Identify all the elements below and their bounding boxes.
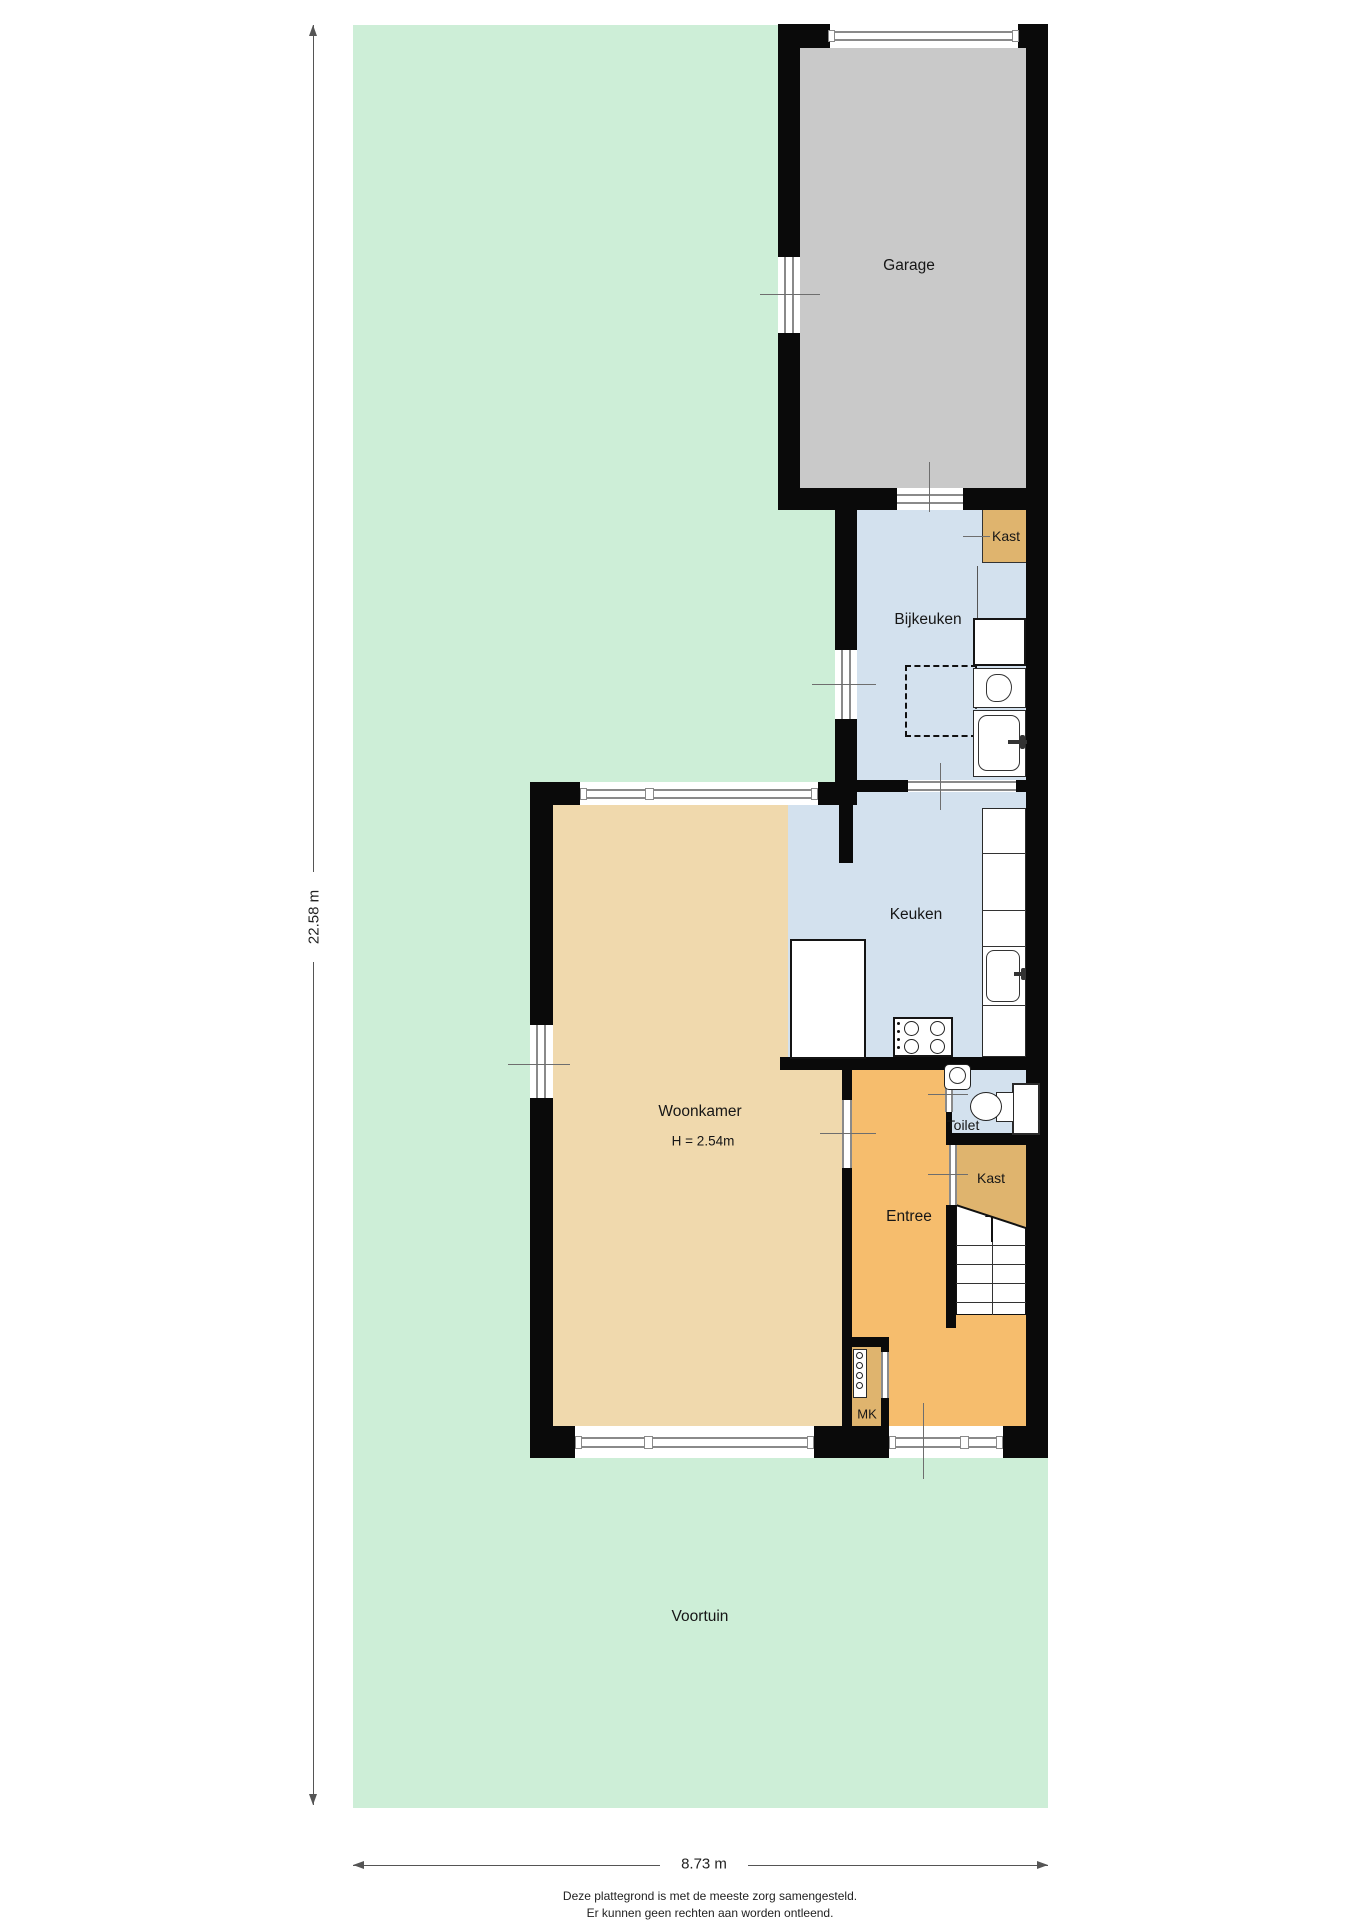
- floorplan-canvas: Garage Bijkeuken Kast Keuken Woonkamer H…: [0, 0, 1358, 1920]
- stove-burner-icon: [930, 1039, 945, 1054]
- fridge: [790, 939, 866, 1059]
- window-tick: [760, 294, 820, 295]
- window-cap: [807, 1436, 814, 1449]
- mk-door-line: [881, 1352, 889, 1398]
- wall-segment: [963, 488, 1048, 510]
- wall-segment: [857, 780, 908, 792]
- kast-door-line: [949, 1145, 957, 1205]
- stove-knob-icon: [897, 1030, 900, 1033]
- garage-door-line: [830, 31, 1018, 41]
- window-tick: [508, 1064, 570, 1065]
- door-tick: [928, 1094, 968, 1095]
- stove-knob-icon: [897, 1046, 900, 1049]
- label-woonkamer: Woonkamer: [658, 1103, 741, 1121]
- wall-segment: [818, 782, 857, 805]
- kast-leader-line: [963, 536, 990, 537]
- dashed-appliance-outline: [905, 665, 977, 737]
- window-cap: [996, 1436, 1003, 1449]
- washing-machine: [973, 618, 1026, 666]
- wall-segment: [1003, 1426, 1048, 1458]
- meter-dial-icon: [856, 1352, 863, 1359]
- stair-tread: [956, 1245, 1026, 1246]
- wall-segment: [530, 1426, 575, 1458]
- plot-width-dimension: 8.73 m: [681, 1856, 727, 1873]
- label-kast-bijkeuken: Kast: [992, 528, 1020, 544]
- horizontal-dimension-line: [353, 1865, 660, 1866]
- dimension-arrow-left: [353, 1861, 364, 1869]
- wall-segment: [842, 1057, 852, 1100]
- wall-segment: [1026, 24, 1048, 1458]
- meter-dial-icon: [856, 1382, 863, 1389]
- footer-disclaimer-line1: Deze plattegrond is met de meeste zorg s…: [563, 1889, 857, 1903]
- door-tick: [929, 462, 930, 512]
- window-cap: [828, 30, 835, 42]
- wall-segment: [814, 1426, 889, 1458]
- stove-burner-icon: [930, 1021, 945, 1036]
- wall-segment: [778, 333, 800, 510]
- entree-bottom-window-line: [889, 1437, 1003, 1448]
- kitchen-counter: [982, 808, 1026, 1057]
- keuken-top-window-line: [908, 781, 1016, 791]
- window-cap: [960, 1436, 969, 1449]
- counter-divider: [982, 1005, 1026, 1006]
- window-cap: [575, 1436, 582, 1449]
- vertical-dimension-line: [313, 25, 314, 872]
- woonkamer-top-window-line: [580, 789, 818, 799]
- woonkamer-left-window-line: [536, 1025, 546, 1098]
- wall-segment: [844, 1337, 889, 1347]
- stair-tread: [956, 1302, 1026, 1303]
- counter-divider: [982, 853, 1026, 854]
- label-kast-entree: Kast: [977, 1170, 1005, 1186]
- kitchen-faucet-icon: [1021, 968, 1026, 980]
- wall-segment: [881, 1398, 889, 1426]
- stove: [893, 1017, 953, 1057]
- plot-height-dimension: 22.58 m: [306, 890, 323, 944]
- label-voortuin: Voortuin: [672, 1608, 729, 1626]
- wall-segment: [842, 1168, 852, 1426]
- label-keuken: Keuken: [890, 906, 943, 924]
- utility-faucet-icon: [1020, 735, 1025, 749]
- toilet-washbasin-bowl-icon: [949, 1067, 966, 1084]
- stove-knob-icon: [897, 1038, 900, 1041]
- wall-segment: [835, 500, 857, 650]
- dimension-arrow-up: [309, 25, 317, 36]
- label-bijkeuken: Bijkeuken: [894, 611, 961, 629]
- room-woonkamer-lower: [788, 1070, 842, 1426]
- window-cap: [889, 1436, 896, 1449]
- horizontal-dimension-line: [748, 1865, 1048, 1866]
- garage-bijkeuken-door-line: [897, 494, 963, 504]
- door-tick: [820, 1133, 876, 1134]
- stair-tread: [956, 1283, 1026, 1284]
- counter-divider: [982, 946, 1026, 947]
- wall-segment: [778, 24, 800, 257]
- footer-disclaimer-line2: Er kunnen geen rechten aan worden ontlee…: [587, 1906, 834, 1920]
- meter-dial-icon: [856, 1372, 863, 1379]
- wall-segment: [530, 1098, 553, 1426]
- label-woonkamer-height: H = 2.54m: [672, 1134, 735, 1149]
- label-mk: MK: [857, 1407, 877, 1422]
- window-tick: [812, 684, 876, 685]
- wall-segment: [946, 1205, 956, 1328]
- woonkamer-entree-door-line: [842, 1100, 852, 1168]
- toilet-cistern: [1012, 1083, 1040, 1135]
- stove-burner-icon: [904, 1021, 919, 1036]
- garage-window-line: [784, 257, 794, 333]
- window-tick: [940, 763, 941, 810]
- door-tick: [928, 1174, 968, 1175]
- wall-segment: [1016, 780, 1026, 792]
- dimension-arrow-down: [309, 1794, 317, 1805]
- label-garage: Garage: [883, 257, 935, 275]
- stove-knob-icon: [897, 1022, 900, 1025]
- wall-segment: [530, 782, 553, 1025]
- window-cap: [645, 788, 654, 800]
- window-cap: [811, 788, 818, 800]
- meter-dial-icon: [856, 1362, 863, 1369]
- wall-segment: [839, 805, 853, 863]
- stove-burner-icon: [904, 1039, 919, 1054]
- label-toilet: Toilet: [947, 1117, 980, 1133]
- dimension-arrow-right: [1037, 1861, 1048, 1869]
- kitchen-sink: [986, 950, 1020, 1002]
- kast-door-swing-line: [977, 566, 978, 618]
- woonkamer-bottom-window-line: [575, 1437, 814, 1448]
- window-cap: [580, 788, 587, 800]
- window-cap: [1012, 30, 1019, 42]
- stair-tread: [956, 1264, 1026, 1265]
- front-door-tick: [923, 1403, 924, 1479]
- vertical-dimension-line: [313, 962, 314, 1805]
- window-cap: [644, 1436, 653, 1449]
- stairs-up-arrow-shaft: [991, 1216, 993, 1242]
- counter-divider: [982, 910, 1026, 911]
- label-entree: Entree: [886, 1208, 932, 1226]
